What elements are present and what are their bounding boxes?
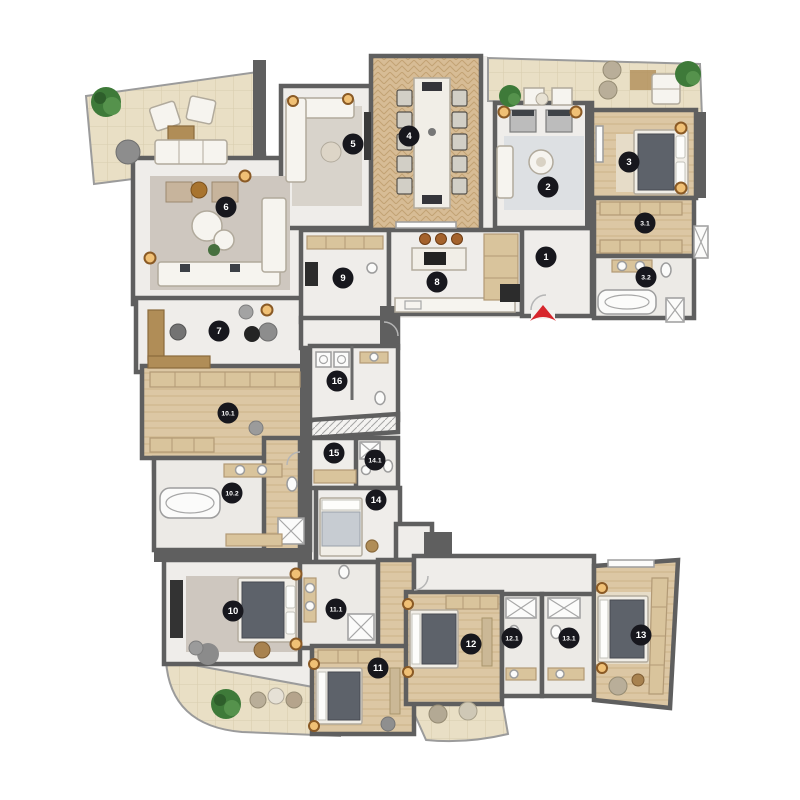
pouf <box>268 688 284 704</box>
room-marker-1[interactable]: 1 <box>536 247 557 268</box>
pouf <box>603 61 621 79</box>
pendant-lamp <box>452 234 463 245</box>
marker-label: 2 <box>545 182 550 193</box>
room-marker-14.1[interactable]: 14.1 <box>365 450 386 471</box>
pillow <box>322 500 360 510</box>
marker-label: 13.1 <box>562 635 575 642</box>
window-sill <box>608 560 654 567</box>
cabinet <box>226 534 282 546</box>
blanket <box>322 512 360 546</box>
bedside-lamp <box>597 583 607 593</box>
room-marker-11.1[interactable]: 11.1 <box>326 599 347 620</box>
sink <box>236 466 245 475</box>
pendant-lamp <box>420 234 431 245</box>
pillow <box>676 136 685 158</box>
armchair <box>166 182 192 202</box>
marker-label: 9 <box>340 273 345 284</box>
marker-label: 16 <box>332 376 343 387</box>
bed-duvet <box>638 134 674 190</box>
plant <box>208 244 220 256</box>
wardrobe <box>600 202 682 215</box>
bedside-lamp <box>403 599 413 609</box>
pouf <box>381 717 395 731</box>
centerpiece <box>428 128 436 136</box>
room-marker-3.2[interactable]: 3.2 <box>636 267 657 288</box>
pouf <box>286 692 302 708</box>
cushion <box>230 264 240 272</box>
marker-label: 4 <box>406 131 412 142</box>
outdoor-sofa <box>155 140 227 164</box>
room-marker-12.1[interactable]: 12.1 <box>502 628 523 649</box>
side-table <box>191 182 207 198</box>
marker-label: 15 <box>329 448 340 459</box>
room-marker-5[interactable]: 5 <box>343 134 364 155</box>
room-marker-4[interactable]: 4 <box>399 126 420 147</box>
pillow <box>318 672 326 720</box>
sink <box>306 584 315 593</box>
floor-lamp <box>240 171 251 182</box>
sink <box>370 353 378 361</box>
pillow <box>412 614 420 664</box>
pouf <box>189 641 203 655</box>
cushion <box>180 264 190 272</box>
cooktop <box>424 252 446 265</box>
room-marker-10.2[interactable]: 10.2 <box>222 483 243 504</box>
marker-label: 10.2 <box>225 490 238 497</box>
shaft-strip <box>310 414 398 438</box>
marker-label: 5 <box>350 139 356 150</box>
cabinet <box>314 470 356 483</box>
pillow <box>286 612 295 634</box>
stool <box>249 421 263 435</box>
pouf <box>250 692 266 708</box>
pouf <box>599 81 617 99</box>
floor-plan-canvas: 1233.13.24567891010.110.21111.11212.1131… <box>0 0 800 800</box>
sink <box>556 670 564 678</box>
table-top <box>536 157 546 167</box>
tree <box>499 85 521 107</box>
dining-table <box>414 78 450 208</box>
appliance <box>305 262 318 286</box>
sink <box>510 670 518 678</box>
tree <box>675 61 701 87</box>
toilet <box>661 263 671 277</box>
marker-label: 10 <box>228 606 239 617</box>
bedside-lamp <box>291 639 302 650</box>
room-marker-10.1[interactable]: 10.1 <box>218 403 239 424</box>
armchair <box>254 642 270 658</box>
floor-lamp <box>571 107 582 118</box>
bed-duvet <box>422 614 456 664</box>
guest-chair <box>239 305 253 319</box>
room-marker-3[interactable]: 3 <box>619 152 640 173</box>
window-sill <box>396 222 456 228</box>
office-chair <box>170 324 186 340</box>
wardrobe <box>446 596 498 609</box>
floor-lamp <box>499 107 510 118</box>
sink <box>306 602 315 611</box>
toilet <box>339 566 349 579</box>
radiator <box>596 126 603 162</box>
chaise <box>497 146 513 198</box>
marker-label: 11.1 <box>330 606 343 613</box>
bedside-lamp <box>403 667 413 677</box>
guest-chair <box>259 323 277 341</box>
marker-label: 3 <box>626 157 631 168</box>
tv-unit <box>170 580 183 638</box>
room-marker-10[interactable]: 10 <box>223 601 244 622</box>
pouf <box>609 677 627 695</box>
sink <box>258 466 267 475</box>
coffee-table <box>168 126 194 141</box>
floor-lamp <box>145 253 156 264</box>
washer <box>316 352 331 367</box>
sofa <box>262 198 286 272</box>
sink <box>367 263 377 273</box>
outdoor-chair <box>552 88 572 105</box>
guest-chair <box>244 326 260 342</box>
bedside-lamp <box>291 569 302 580</box>
marker-label: 10.1 <box>221 410 234 417</box>
bedside-lamp <box>309 721 319 731</box>
marker-label: 14.1 <box>368 457 381 464</box>
room-marker-8[interactable]: 8 <box>427 272 448 293</box>
toilet <box>287 477 297 491</box>
bedside-lamp <box>676 183 687 194</box>
floor-lamp <box>288 96 298 106</box>
bedside-lamp <box>676 123 687 134</box>
desk <box>148 310 164 360</box>
pouf <box>429 705 447 723</box>
marker-label: 1 <box>543 252 549 263</box>
floor-lamp <box>343 94 353 104</box>
room-marker-13[interactable]: 13 <box>631 625 652 646</box>
wardrobe <box>150 438 214 452</box>
pillow <box>286 586 295 608</box>
cushion <box>512 110 534 116</box>
bedside-lamp <box>597 663 607 673</box>
vanity <box>224 464 282 477</box>
bed-duvet <box>328 672 360 720</box>
dryer <box>334 352 349 367</box>
round-table <box>536 93 548 105</box>
room-marker-16[interactable]: 16 <box>327 371 348 392</box>
appliance <box>500 284 520 302</box>
room-marker-3.1[interactable]: 3.1 <box>635 213 656 234</box>
marker-label: 8 <box>434 277 439 288</box>
pillow <box>600 600 608 658</box>
room-marker-14[interactable]: 14 <box>366 490 387 511</box>
marker-label: 12 <box>466 639 477 650</box>
ottoman <box>321 142 341 162</box>
round-table <box>116 140 140 164</box>
bathtub <box>598 290 656 314</box>
pouf <box>459 702 477 720</box>
room-marker-12[interactable]: 12 <box>461 634 482 655</box>
marker-label: 6 <box>223 202 228 213</box>
marker-label: 7 <box>216 326 221 337</box>
room-marker-6[interactable]: 6 <box>216 197 237 218</box>
desk <box>148 356 210 368</box>
outdoor-chair <box>186 96 216 125</box>
pillow <box>676 162 685 184</box>
floor-plan: 1233.13.24567891010.110.21111.11212.1131… <box>0 0 800 800</box>
marker-label: 3.2 <box>641 274 651 281</box>
side-table <box>366 540 378 552</box>
pouf <box>632 674 644 686</box>
marker-label: 14 <box>371 495 382 506</box>
sink <box>618 262 627 271</box>
marker-label: 3.1 <box>640 220 650 227</box>
marker-label: 13 <box>636 630 647 641</box>
bed-duvet <box>242 582 284 638</box>
room-marker-11[interactable]: 11 <box>368 658 389 679</box>
pendant-lamp <box>436 234 447 245</box>
room-marker-2[interactable]: 2 <box>538 177 559 198</box>
room-marker-15[interactable]: 15 <box>324 443 345 464</box>
bench <box>390 668 400 714</box>
table-end <box>422 82 442 91</box>
room-marker-7[interactable]: 7 <box>209 321 230 342</box>
room-marker-13.1[interactable]: 13.1 <box>559 628 580 649</box>
floor-lamp <box>262 305 273 316</box>
room-marker-9[interactable]: 9 <box>333 268 354 289</box>
sofa <box>286 98 306 182</box>
toilet <box>375 392 385 405</box>
bedside-lamp <box>309 659 319 669</box>
marker-label: 12.1 <box>505 635 518 642</box>
tv-unit <box>364 112 371 160</box>
bench <box>482 618 492 666</box>
marker-label: 11 <box>373 663 384 674</box>
table-end <box>422 195 442 204</box>
tree <box>91 87 121 117</box>
living-6-furniture <box>145 171 291 291</box>
store-15-furniture <box>314 470 356 483</box>
cushion <box>548 110 570 116</box>
vanity <box>548 668 584 680</box>
wardrobe <box>600 240 682 253</box>
tree <box>211 689 241 719</box>
